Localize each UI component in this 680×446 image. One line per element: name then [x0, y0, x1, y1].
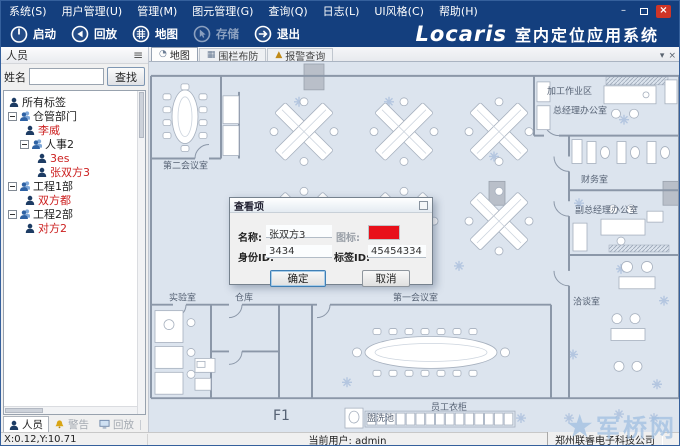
person-icon	[10, 98, 18, 107]
hand-pointer-icon	[192, 24, 212, 44]
top-bar: 系统(S) 用户管理(U) 管理(M) 图元管理(G) 查询(Q) 日志(L) …	[1, 1, 679, 47]
floor-label: F1	[273, 408, 290, 424]
person-icon	[38, 168, 46, 177]
menu-item-user-mgmt[interactable]: 用户管理(U)	[62, 3, 123, 19]
cancel-button[interactable]: 取消	[362, 270, 410, 287]
menu-bar: 系统(S) 用户管理(U) 管理(M) 图元管理(G) 查询(Q) 日志(L) …	[1, 1, 679, 21]
collapse-icon[interactable]	[20, 140, 29, 149]
start-button[interactable]: 启动	[9, 24, 56, 44]
room-label-wash-basin: 盥洗池	[367, 412, 394, 424]
current-user: 当前用户: admin	[309, 436, 387, 446]
tab-close-icon[interactable]: ×	[668, 52, 676, 61]
room-label-laboratory: 实验室	[169, 292, 196, 304]
bell-icon	[54, 419, 65, 429]
tree-node-dept-eng1[interactable]: 工程1部	[4, 179, 145, 193]
group-icon	[32, 139, 42, 149]
identity-id-field[interactable]: 3434	[266, 245, 332, 258]
tag-id-field[interactable]: 45454334	[368, 245, 426, 258]
search-row: 姓名 查找	[1, 64, 148, 89]
window-controls: – ×	[616, 5, 671, 18]
person-icon	[26, 126, 34, 135]
map-tab-bar: ◔ 地图 ▦ 围栏布防 ▲ 报警查询 ▾ ×	[149, 47, 680, 62]
tree-node-person[interactable]: 双方都	[4, 193, 145, 207]
room-label-negotiation-room: 洽谈室	[573, 296, 600, 308]
personnel-panel: 人员 ≡ 姓名 查找 所有标签 仓管部门	[1, 47, 149, 432]
replay-button[interactable]: 回放	[70, 24, 117, 44]
maximize-icon[interactable]	[636, 5, 651, 18]
main-area: ◔ 地图 ▦ 围栏布防 ▲ 报警查询 ▾ ×	[149, 47, 680, 432]
menu-item-system[interactable]: 系统(S)	[9, 3, 47, 19]
tree-node-person[interactable]: 3es	[4, 151, 145, 165]
collapse-icon[interactable]	[8, 112, 17, 121]
dialog-close-icon[interactable]	[419, 201, 428, 210]
tree-horizontal-scrollbar[interactable]	[4, 406, 137, 414]
panel-tabs: 人员 警告 回放	[1, 415, 148, 432]
name-field[interactable]: 张双方3	[266, 225, 332, 238]
view-item-dialog: 查看项 名称: 张双方3 图标: 身份ID: 3434 标签ID: 454543…	[229, 197, 433, 285]
grid-icon: ▦	[207, 51, 216, 60]
person-icon	[9, 420, 19, 430]
grid-map-icon	[131, 24, 151, 44]
dialog-title: 查看项	[234, 198, 264, 213]
panel-header: 人员 ≡	[1, 47, 148, 64]
panel-title: 人员	[6, 47, 28, 63]
tree-node-person[interactable]: 对方2	[4, 221, 145, 235]
map-icon: ◔	[159, 50, 167, 59]
person-icon	[38, 154, 46, 163]
dialog-body: 名称: 张双方3 图标: 身份ID: 3434 标签ID: 45454334 确…	[230, 213, 432, 285]
tree-node-dept-warehouse[interactable]: 仓管部门	[4, 109, 145, 123]
room-label-finance-office: 财务室	[581, 173, 608, 185]
icon-label: 图标:	[336, 229, 360, 244]
room-label-meeting-room-1: 第一会议室	[393, 292, 438, 304]
ok-button[interactable]: 确定	[270, 270, 326, 287]
status-bar: X:0.12,Y:10.71 当前用户: admin 郑州联睿电子科技公司	[1, 432, 679, 446]
tree-node-person[interactable]: 张双方3	[4, 165, 145, 179]
dialog-title-bar[interactable]: 查看项	[230, 198, 432, 213]
tree-node-all-tags[interactable]: 所有标签	[4, 95, 145, 109]
menu-item-query[interactable]: 查询(Q)	[268, 3, 307, 19]
room-label-meeting-room-2: 第二会议室	[163, 159, 208, 171]
minimize-icon[interactable]: –	[616, 5, 631, 18]
person-icon	[26, 224, 34, 233]
tab-dropdown-icon[interactable]: ▾	[660, 52, 665, 61]
search-label: 姓名	[4, 69, 26, 85]
menu-item-help[interactable]: 帮助(H)	[439, 3, 478, 19]
app-window: 系统(S) 用户管理(U) 管理(M) 图元管理(G) 查询(Q) 日志(L) …	[0, 0, 680, 446]
collapse-icon[interactable]	[8, 210, 17, 219]
room-label-staff-lockers: 员工衣柜	[431, 401, 467, 413]
exit-arrow-icon	[253, 24, 273, 44]
search-input[interactable]	[29, 68, 104, 85]
power-icon	[9, 24, 29, 44]
brand-logo: Locaris	[416, 22, 507, 46]
coordinates-readout: X:0.12,Y:10.71	[1, 434, 148, 445]
tab-playback[interactable]: 回放	[94, 416, 139, 432]
menu-item-log[interactable]: 日志(L)	[323, 3, 360, 19]
tab-fence-arming[interactable]: ▦ 围栏布防	[199, 48, 267, 61]
room-label-deputy-gm-office: 副总经理办公室	[575, 204, 638, 216]
tag-id-label: 标签ID:	[334, 249, 370, 264]
menu-item-management[interactable]: 管理(M)	[137, 3, 177, 19]
monitor-icon	[99, 419, 110, 429]
warning-icon: ▲	[275, 51, 282, 60]
tab-alerts[interactable]: 警告	[49, 416, 94, 432]
group-icon	[20, 181, 30, 191]
close-icon[interactable]: ×	[656, 5, 671, 18]
menu-item-ui-style[interactable]: UI风格(C)	[374, 3, 424, 19]
tree-vertical-scrollbar[interactable]	[137, 91, 145, 414]
person-icon	[26, 196, 34, 205]
personnel-tree: 所有标签 仓管部门 李威 人事2 3es	[3, 90, 146, 415]
room-label-processing-area: 加工作业区	[547, 85, 592, 97]
tag-icon-swatch[interactable]	[368, 225, 400, 240]
storage-button: 存储	[192, 24, 239, 44]
name-label: 名称:	[238, 229, 262, 244]
replay-icon	[70, 24, 90, 44]
tab-personnel[interactable]: 人员	[3, 416, 49, 432]
tab-map[interactable]: ◔ 地图	[151, 47, 198, 61]
app-brand: Locaris 室内定位应用系统	[416, 22, 672, 46]
tree-node-dept-eng2[interactable]: 工程2部	[4, 207, 145, 221]
tree-node-dept-hr2[interactable]: 人事2	[4, 137, 145, 151]
group-icon	[20, 111, 30, 121]
room-label-warehouse: 仓库	[235, 292, 253, 304]
panel-menu-icon[interactable]: ≡	[133, 48, 143, 62]
toolbar: 启动 回放 地图 存储	[1, 21, 679, 47]
room-label-gm-office: 总经理办公室	[553, 105, 607, 117]
collapse-icon[interactable]	[8, 182, 17, 191]
brand-title: 室内定位应用系统	[515, 22, 659, 46]
map-button[interactable]: 地图	[131, 24, 178, 44]
exit-button[interactable]: 退出	[253, 24, 300, 44]
group-icon	[20, 209, 30, 219]
menu-item-element-mgmt[interactable]: 图元管理(G)	[192, 3, 253, 19]
tab-alarm-query[interactable]: ▲ 报警查询	[267, 48, 333, 61]
search-button[interactable]: 查找	[107, 67, 145, 86]
tree-node-person[interactable]: 李威	[4, 123, 145, 137]
company-name: 郑州联睿电子科技公司	[547, 431, 663, 446]
